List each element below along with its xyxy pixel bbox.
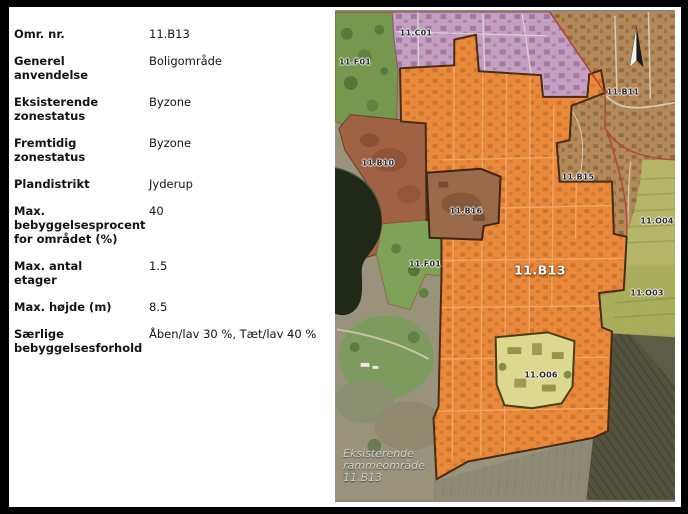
info-row: Plandistrikt Jyderup: [14, 177, 329, 191]
map-caption: Eksisterende rammeområde 11.B13: [343, 448, 425, 484]
map-caption-line: 11.B13: [343, 472, 425, 484]
info-value: 11.B13: [149, 27, 190, 41]
info-value: Byzone: [149, 136, 191, 164]
info-label: Fremtidig zonestatus: [14, 136, 126, 164]
area-label-11-B11: 11.B11: [607, 88, 640, 97]
info-label: Generel anvendelse: [14, 54, 126, 82]
info-value: 40: [149, 204, 164, 246]
area-label-11-B16: 11.B16: [450, 207, 483, 216]
area-label-11-F01-lake: 11.F01: [409, 260, 441, 269]
info-label: Omr. nr.: [14, 27, 126, 41]
info-label: Plandistrikt: [14, 177, 126, 191]
area-label-11-O03: 11.O03: [630, 289, 663, 298]
info-row: Eksisterende zonestatus Byzone: [14, 95, 329, 123]
info-value: 1.5: [149, 259, 167, 287]
info-label: Max. bebyggelsesprocent for området (%): [14, 204, 126, 246]
info-row: Særlige bebyggelsesforhold Åben/lav 30 %…: [14, 327, 329, 355]
info-value: Jyderup: [149, 177, 193, 191]
info-value: Boligområde: [149, 54, 222, 82]
area-label-11-F01: 11.F01: [339, 58, 371, 67]
info-value: Åben/lav 30 %, Tæt/lav 40 %: [149, 327, 316, 355]
page-content: Omr. nr. 11.B13 Generel anvendelse Bolig…: [9, 7, 681, 507]
info-panel: Omr. nr. 11.B13 Generel anvendelse Bolig…: [9, 7, 335, 507]
area-label-11-B15: 11.B15: [562, 173, 595, 182]
info-row: Max. højde (m) 8.5: [14, 300, 329, 314]
plan-page: Omr. nr. 11.B13 Generel anvendelse Bolig…: [0, 0, 688, 514]
area-label-11-O06: 11.O06: [524, 371, 557, 380]
area-label-11-B10: 11.B10: [362, 159, 395, 168]
info-value: 8.5: [149, 300, 167, 314]
info-row: Fremtidig zonestatus Byzone: [14, 136, 329, 164]
info-label: Max. antal etager: [14, 259, 126, 287]
info-row: Omr. nr. 11.B13: [14, 27, 329, 41]
map-image: [335, 10, 675, 502]
info-label: Eksisterende zonestatus: [14, 95, 126, 123]
area-label-11-C01: 11.C01: [400, 29, 432, 38]
area-label-11-O04: 11.O04: [640, 217, 673, 226]
info-label: Max. højde (m): [14, 300, 126, 314]
info-row: Max. bebyggelsesprocent for området (%) …: [14, 204, 329, 246]
info-row: Max. antal etager 1.5: [14, 259, 329, 287]
info-row: Generel anvendelse Boligområde: [14, 54, 329, 82]
highlight-area-label: 11.B13: [514, 263, 566, 278]
info-value: Byzone: [149, 95, 191, 123]
info-label: Særlige bebyggelsesforhold: [14, 327, 126, 355]
zoning-map: 11.F01 11.C01 11.B10 11.B16 11.B11 11.B1…: [335, 10, 675, 502]
